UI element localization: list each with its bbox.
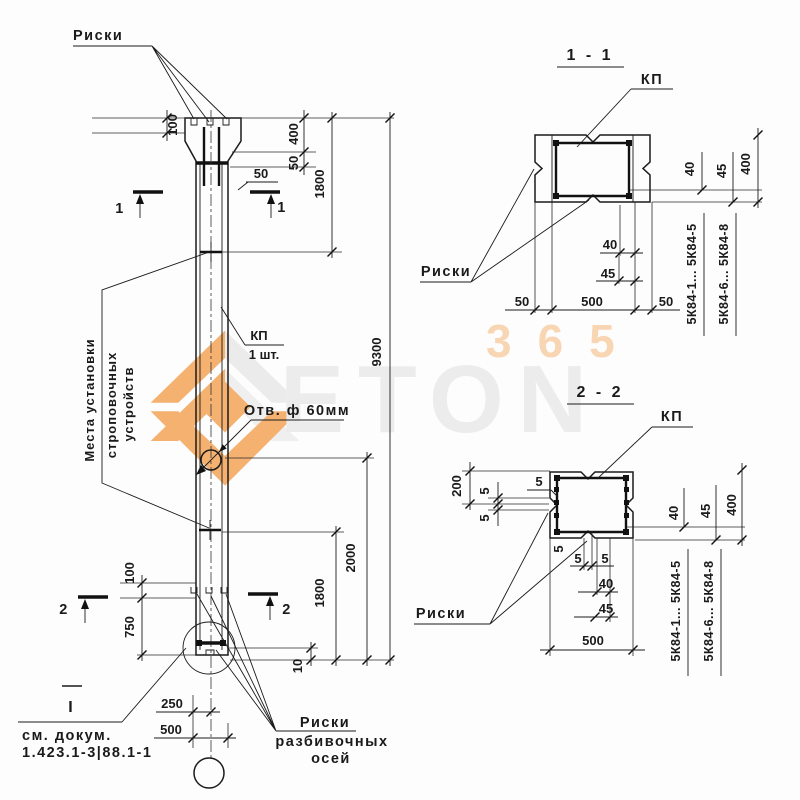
- kp-qty-label: 1 шт.: [249, 347, 280, 362]
- dim-gap-10: 10: [290, 659, 305, 673]
- s1-dim-b50r: 50: [659, 294, 673, 309]
- column-elevation-outline: [183, 110, 241, 788]
- dim-upper-1800: 1800: [312, 170, 327, 199]
- s1-dim-s40: 40: [603, 237, 617, 252]
- dim-total-9300: 9300: [369, 338, 384, 367]
- section-2-2: [414, 404, 747, 676]
- doc-ref-line1: см. докум.: [22, 728, 112, 744]
- s2-dim-l200: 200: [449, 475, 464, 497]
- s2-dim-l5b: 5: [477, 514, 492, 521]
- section2-kp-label: КП: [661, 409, 683, 425]
- hole-label: Отв. ф 60мм: [244, 403, 350, 419]
- s2-dim-b5a: 5: [574, 551, 581, 566]
- kp-label: КП: [250, 328, 267, 343]
- dim-head-50: 50: [286, 156, 301, 170]
- section1-mark-left: 1: [115, 201, 125, 217]
- axes-label-line2: разбивочных: [275, 734, 388, 750]
- section1-title: 1 - 1: [566, 47, 613, 64]
- dim-axis-250: 250: [161, 696, 183, 711]
- section2-riski-label: Риски: [416, 606, 466, 622]
- dim-shaft-50: 50: [254, 166, 268, 181]
- s1-dim-r45: 45: [714, 164, 729, 178]
- s2-dim-r40: 40: [666, 506, 681, 520]
- s2-dim-r400: 400: [724, 494, 739, 516]
- section2-mark-right: 2: [282, 602, 292, 618]
- dim-axis-500: 500: [160, 722, 182, 737]
- s2-dim-b500: 500: [582, 633, 604, 648]
- elevation-extension-lines: [92, 118, 394, 748]
- strop-label-line3: устройств: [121, 367, 136, 442]
- s2-dim-s40: 40: [599, 576, 613, 591]
- column-drawing: Риски 100 400 50 50 1800 9300 2000 1800 …: [0, 0, 800, 800]
- section1-kp-label: КП: [641, 72, 663, 88]
- s2-dim-bs5: 5: [551, 545, 566, 552]
- section1-mark-right: 1: [277, 200, 287, 216]
- drawing-sheet: ETON 365: [0, 0, 800, 800]
- dim-low-750: 750: [122, 616, 137, 638]
- s1-series1-label: 5К84-1... 5К84-5: [685, 223, 699, 324]
- riski-top-label: Риски: [73, 28, 123, 44]
- s2-series2-label: 5К84-6... 5К84-8: [702, 560, 716, 661]
- section2-mark-left: 2: [59, 602, 69, 618]
- s1-dim-b50l: 50: [515, 294, 529, 309]
- axis-bubble: [194, 758, 224, 788]
- s2-dim-r45: 45: [698, 504, 713, 518]
- dim-hole-2000: 2000: [343, 544, 358, 573]
- dim-lower-1800: 1800: [312, 579, 327, 608]
- strop-label-line1: Места установки: [82, 338, 97, 461]
- axes-label-line1: Риски: [300, 715, 350, 731]
- dim-head-400: 400: [286, 123, 301, 145]
- s2-dim-b5b: 5: [601, 551, 608, 566]
- s1-dim-r40: 40: [682, 162, 697, 176]
- section1-riski-label: Риски: [421, 264, 471, 280]
- s1-series2-label: 5К84-6... 5К84-8: [717, 223, 731, 324]
- s2-series1-label: 5К84-1... 5К84-5: [669, 560, 683, 661]
- strop-label-line2: строповочных: [104, 352, 119, 458]
- s1-dim-b500: 500: [581, 294, 603, 309]
- s2-dim-l5a: 5: [477, 487, 492, 494]
- s2-dim-c5: 5: [535, 474, 542, 489]
- s2-dim-s45: 45: [599, 601, 613, 616]
- datum-mark: I: [68, 699, 75, 716]
- elevation-leader-lines: [18, 46, 356, 731]
- dim-low-100: 100: [122, 562, 137, 584]
- s1-dim-r400: 400: [738, 153, 753, 175]
- dim-top-100: 100: [165, 114, 180, 136]
- s1-dim-s45: 45: [601, 266, 615, 281]
- section2-title: 2 - 2: [576, 384, 623, 401]
- axes-label-line3: осей: [311, 751, 351, 767]
- doc-ref-line2: 1.423.1-3|88.1-1: [22, 745, 152, 761]
